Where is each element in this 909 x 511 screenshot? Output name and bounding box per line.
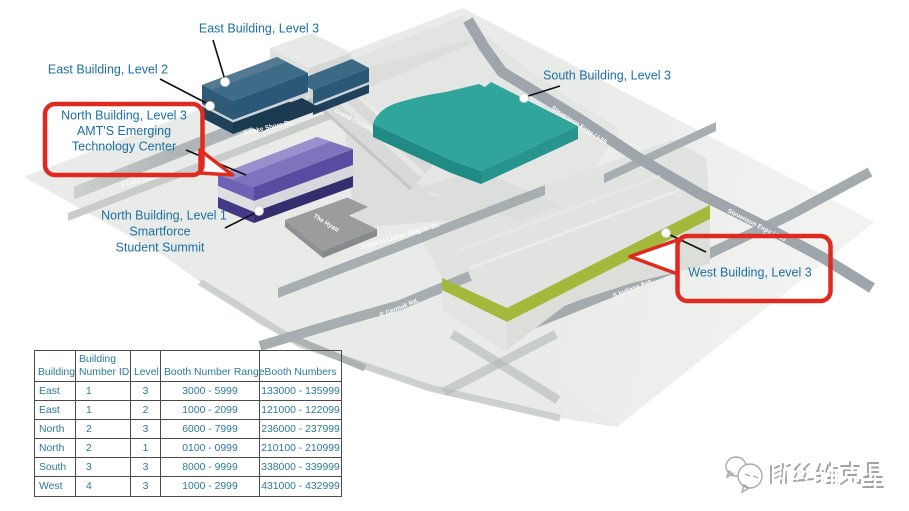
svg-text:East Building, Level 2: East Building, Level 2 bbox=[48, 63, 168, 77]
svg-text:East Building, Level 3: East Building, Level 3 bbox=[199, 22, 319, 36]
svg-text:North Building, Level 1: North Building, Level 1 bbox=[101, 209, 227, 223]
svg-text:South Building, Level 3: South Building, Level 3 bbox=[543, 69, 671, 83]
svg-text:North Building, Level 3: North Building, Level 3 bbox=[61, 109, 187, 123]
svg-text:AMT'S Emerging: AMT'S Emerging bbox=[77, 124, 171, 138]
svg-text:Student Summit: Student Summit bbox=[116, 241, 205, 255]
svg-text:Smartforce: Smartforce bbox=[129, 225, 190, 239]
svg-text:West Building, Level 3: West Building, Level 3 bbox=[688, 266, 811, 280]
svg-text:Technology Center: Technology Center bbox=[72, 140, 176, 154]
